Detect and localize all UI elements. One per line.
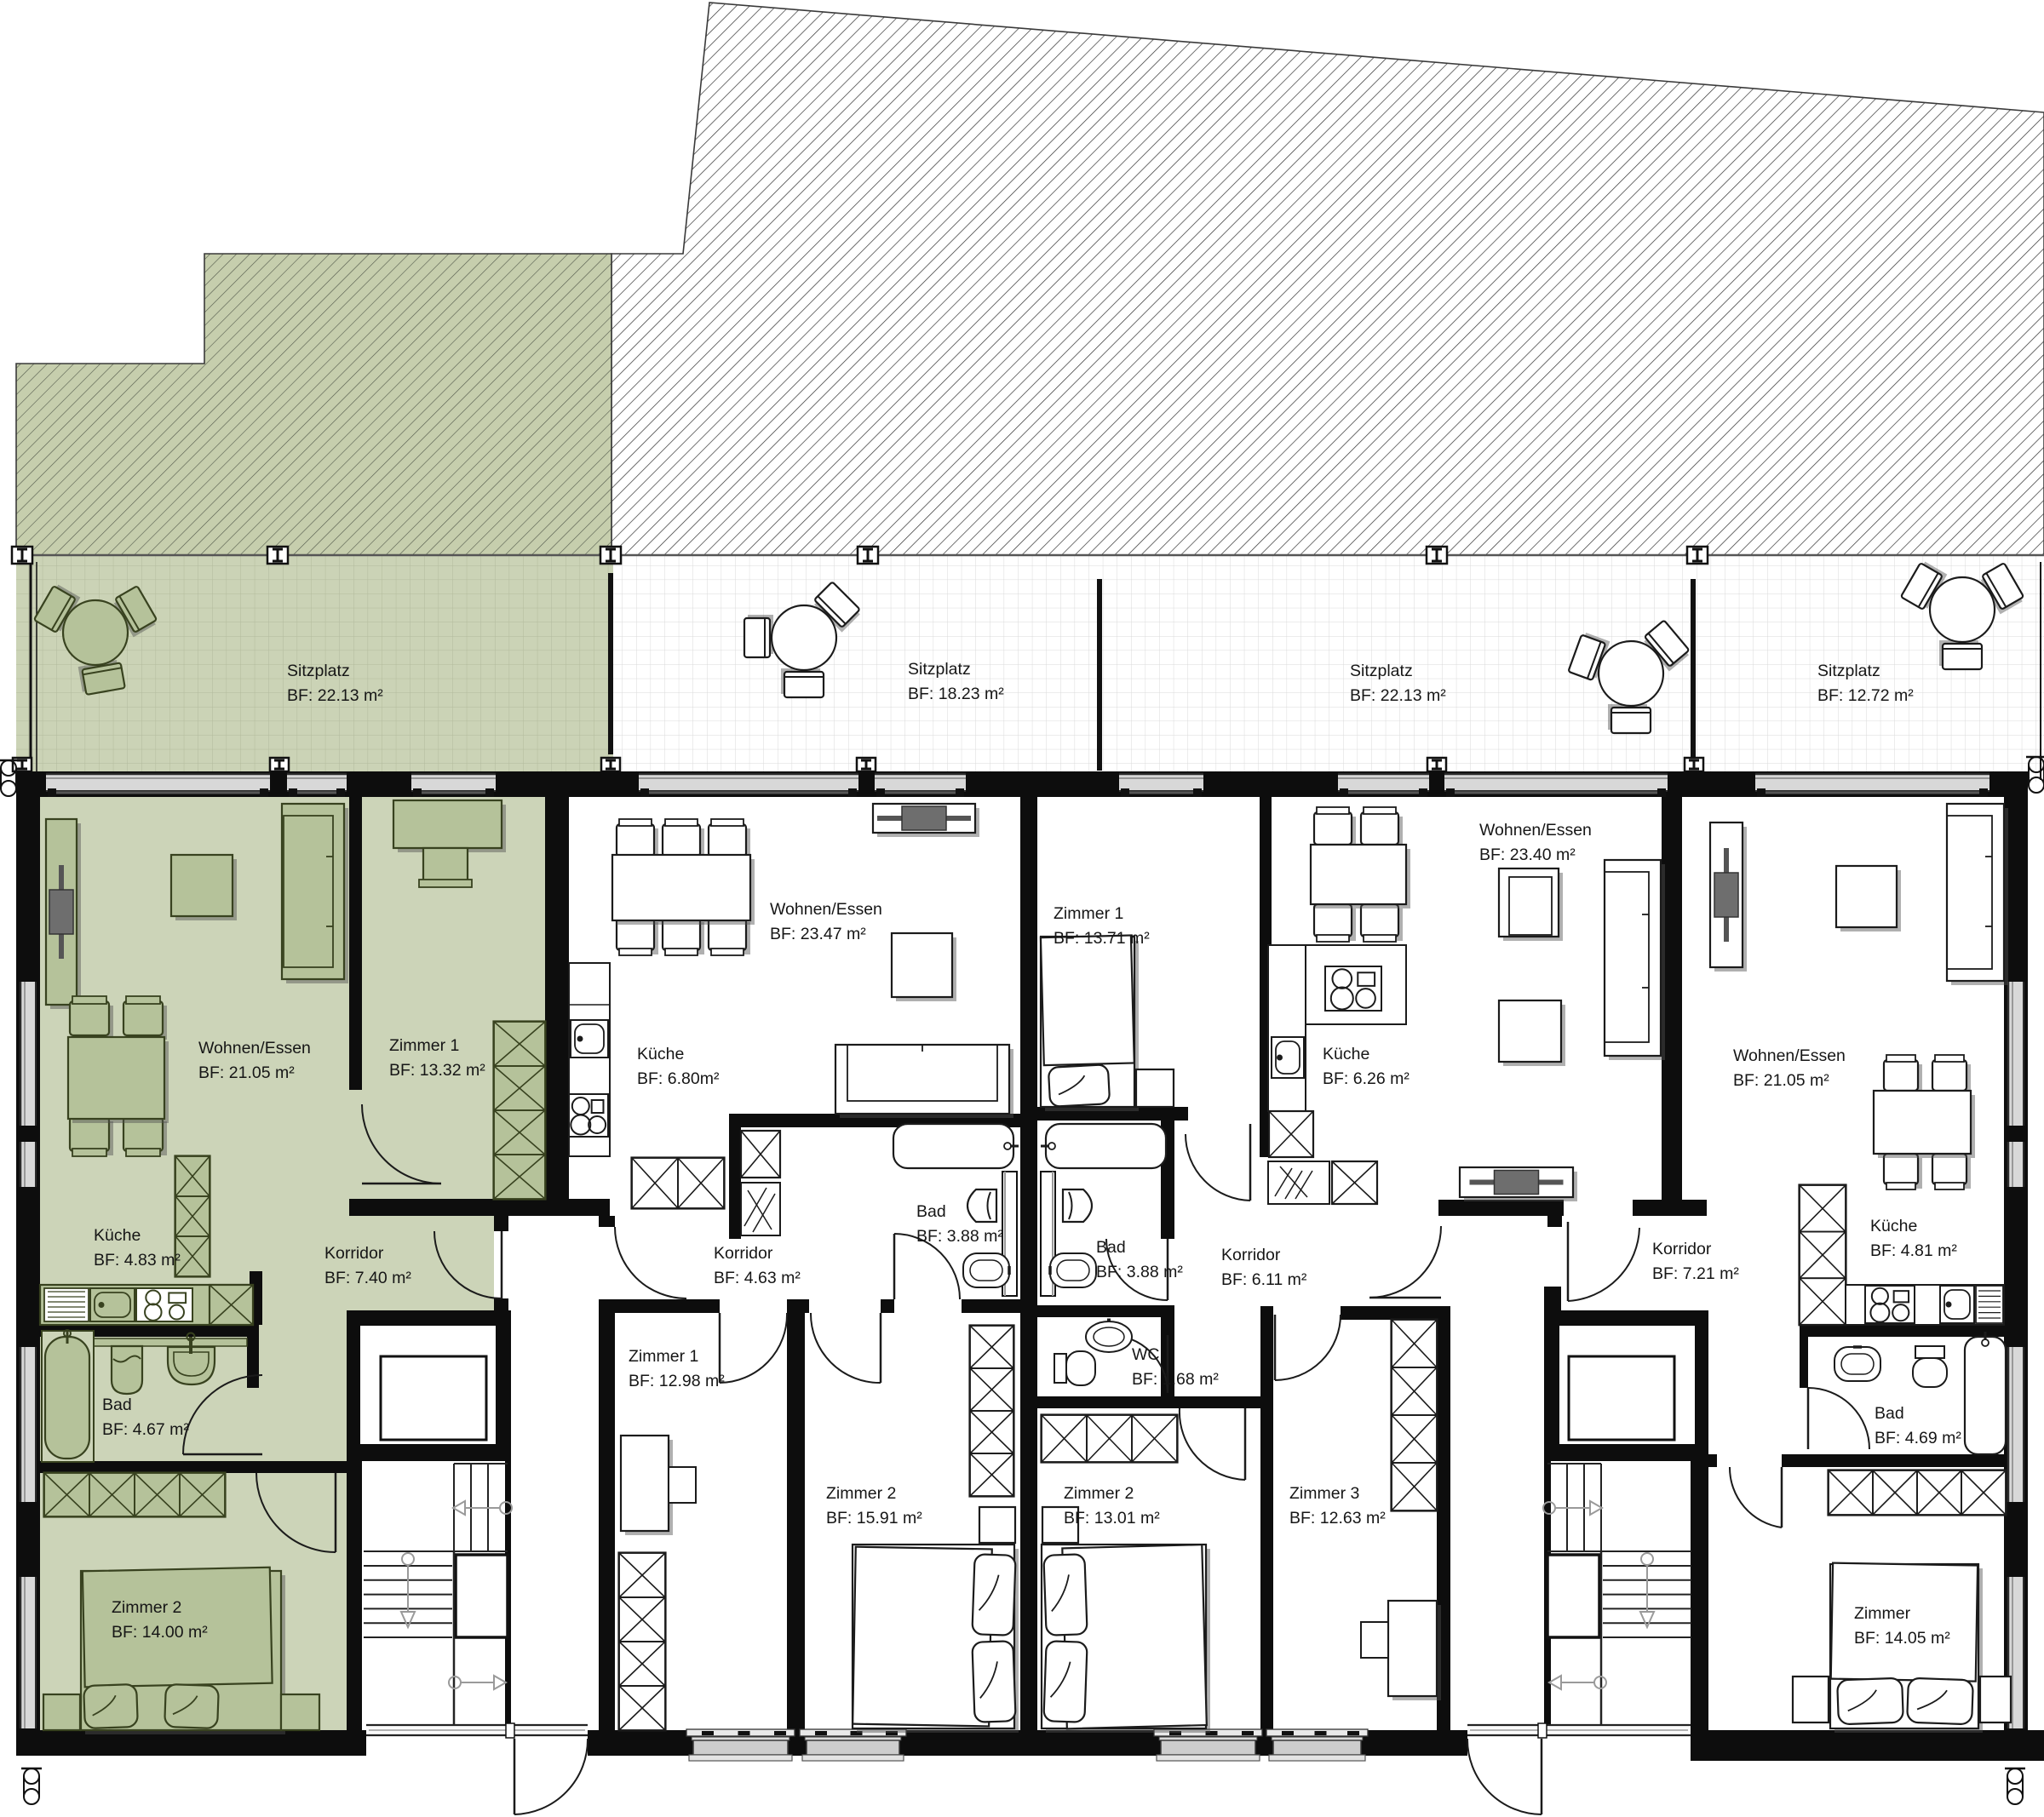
svg-text:Wohnen/Essen: Wohnen/Essen [1733,1046,1846,1065]
svg-text:BF: 12.98 m²: BF: 12.98 m² [629,1372,725,1390]
svg-text:Sitzplatz: Sitzplatz [1817,662,1880,680]
svg-text:WC: WC [1132,1345,1160,1364]
svg-text:BF: 13.32 m²: BF: 13.32 m² [389,1061,485,1080]
svg-text:BF: 13.01 m²: BF: 13.01 m² [1064,1509,1160,1528]
svg-text:Küche: Küche [637,1045,684,1063]
svg-text:Sitzplatz: Sitzplatz [287,662,350,680]
svg-text:BF: 23.40 m²: BF: 23.40 m² [1479,845,1576,864]
svg-text:Wohnen/Essen: Wohnen/Essen [198,1039,311,1058]
svg-text:BF: 14.05 m²: BF: 14.05 m² [1854,1629,1950,1648]
svg-text:Bad: Bad [916,1202,946,1221]
svg-text:BF: 21.05 m²: BF: 21.05 m² [198,1063,295,1082]
svg-text:Wohnen/Essen: Wohnen/Essen [770,900,882,919]
svg-text:Küche: Küche [1870,1217,1917,1235]
svg-text:BF: 23.47 m²: BF: 23.47 m² [770,925,866,943]
svg-text:BF: 4.63 m²: BF: 4.63 m² [714,1269,801,1287]
svg-text:BF: 1.68 m²: BF: 1.68 m² [1132,1370,1219,1389]
svg-text:Küche: Küche [1323,1045,1369,1063]
svg-text:BF: 4.67 m²: BF: 4.67 m² [102,1420,189,1439]
svg-text:Bad: Bad [1096,1238,1126,1257]
svg-text:Sitzplatz: Sitzplatz [908,660,971,679]
svg-text:BF: 12.72 m²: BF: 12.72 m² [1817,686,1914,705]
svg-text:Bad: Bad [102,1396,132,1414]
svg-text:BF: 18.23 m²: BF: 18.23 m² [908,685,1004,703]
svg-text:BF: 4.81 m²: BF: 4.81 m² [1870,1241,1957,1260]
svg-text:Zimmer 3: Zimmer 3 [1289,1484,1359,1503]
svg-text:BF: 15.91 m²: BF: 15.91 m² [826,1509,922,1528]
svg-text:BF: 3.88 m²: BF: 3.88 m² [916,1227,1003,1246]
svg-text:BF: 3.88 m²: BF: 3.88 m² [1096,1263,1183,1281]
svg-text:BF: 6.11 m²: BF: 6.11 m² [1221,1270,1307,1289]
svg-text:Zimmer 2: Zimmer 2 [112,1598,181,1617]
svg-text:Zimmer 1: Zimmer 1 [389,1036,459,1055]
svg-text:BF: 13.71 m²: BF: 13.71 m² [1054,929,1150,948]
svg-text:BF: 22.13 m²: BF: 22.13 m² [1350,686,1446,705]
svg-text:BF: 4.83 m²: BF: 4.83 m² [94,1251,181,1270]
svg-text:Zimmer 1: Zimmer 1 [629,1347,698,1366]
svg-text:BF: 21.05 m²: BF: 21.05 m² [1733,1071,1829,1090]
svg-text:BF: 6.26 m²: BF: 6.26 m² [1323,1069,1410,1088]
svg-text:Korridor: Korridor [1221,1246,1281,1264]
svg-text:Korridor: Korridor [1652,1240,1712,1258]
svg-text:Wohnen/Essen: Wohnen/Essen [1479,821,1592,840]
svg-text:BF: 14.00 m²: BF: 14.00 m² [112,1623,208,1642]
svg-text:Korridor: Korridor [714,1244,773,1263]
svg-text:BF: 4.69 m²: BF: 4.69 m² [1875,1429,1961,1447]
svg-text:BF: 12.63 m²: BF: 12.63 m² [1289,1509,1386,1528]
svg-text:Küche: Küche [94,1226,141,1245]
svg-text:Sitzplatz: Sitzplatz [1350,662,1413,680]
svg-text:BF: 7.40 m²: BF: 7.40 m² [324,1269,411,1287]
svg-text:BF: 6.80m²: BF: 6.80m² [637,1069,720,1088]
svg-text:Zimmer: Zimmer [1854,1604,1911,1623]
svg-text:Zimmer 1: Zimmer 1 [1054,904,1123,923]
svg-text:BF: 22.13 m²: BF: 22.13 m² [287,686,383,705]
svg-text:Zimmer 2: Zimmer 2 [1064,1484,1134,1503]
svg-text:Zimmer 2: Zimmer 2 [826,1484,896,1503]
svg-text:BF: 7.21 m²: BF: 7.21 m² [1652,1264,1739,1283]
svg-text:Bad: Bad [1875,1404,1904,1423]
svg-text:Korridor: Korridor [324,1244,384,1263]
